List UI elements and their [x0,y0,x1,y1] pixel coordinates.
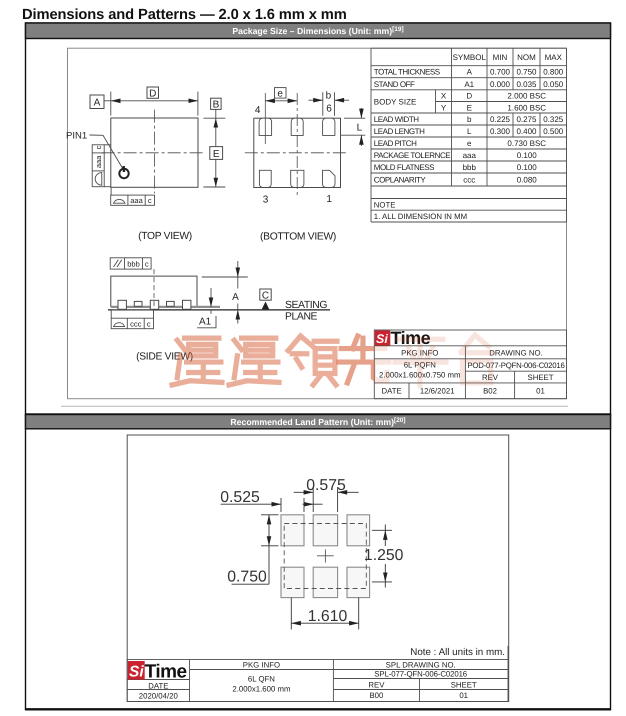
svg-text:Si: Si [129,663,144,680]
svg-text:ccc: ccc [130,319,142,328]
svg-text:COPLANARITY: COPLANARITY [374,176,427,185]
svg-text:6L QFN: 6L QFN [248,675,275,684]
svg-text:SYMBOL: SYMBOL [453,53,487,62]
svg-text:LEAD WIDTH: LEAD WIDTH [374,115,420,124]
svg-text:0.750: 0.750 [227,569,267,586]
svg-text:1.600 BSC: 1.600 BSC [507,103,546,112]
svg-text:SHEET: SHEET [451,680,477,689]
svg-text:1: 1 [326,194,332,205]
svg-text:A1: A1 [199,316,212,327]
svg-text:REV: REV [368,680,385,689]
svg-text:MOLD FLATNESS: MOLD FLATNESS [374,163,434,172]
svg-text:2.000x1.600 mm: 2.000x1.600 mm [232,685,290,694]
svg-text:0.400: 0.400 [516,127,537,136]
svg-text:X: X [441,92,447,101]
svg-text:b: b [326,91,332,102]
svg-text:LEAD PITCH: LEAD PITCH [374,139,417,148]
svg-text:STAND OFF: STAND OFF [374,80,415,89]
svg-text:12/6/2021: 12/6/2021 [420,387,455,396]
svg-text:bbb: bbb [463,163,477,172]
svg-text:Package Size – Dimensions (Uni: Package Size – Dimensions (Unit: mm)[19] [232,26,403,36]
svg-text:PLANE: PLANE [285,312,318,323]
svg-text:B02: B02 [483,387,497,396]
svg-text:MIN: MIN [493,53,508,62]
svg-text:PKG INFO: PKG INFO [243,660,280,669]
svg-text:SHEET: SHEET [528,373,554,382]
svg-text:BODY SIZE: BODY SIZE [374,97,417,106]
svg-text:DRAWING NO.: DRAWING NO. [489,349,542,358]
svg-text:e: e [467,139,472,148]
svg-text:0.080: 0.080 [517,176,538,185]
svg-text:0.300: 0.300 [490,127,511,136]
svg-text:SPL-077-QFN-006-C02016: SPL-077-QFN-006-C02016 [374,669,467,678]
svg-text:L: L [357,123,363,134]
svg-text:b: b [467,115,472,124]
svg-text:A: A [232,292,239,303]
svg-text:NOM: NOM [517,53,536,62]
svg-text:c: c [145,259,149,268]
svg-text:aaa: aaa [130,196,143,205]
svg-text:3: 3 [263,195,269,206]
svg-text:SPL DRAWING NO.: SPL DRAWING NO. [386,660,456,669]
svg-text:c: c [147,319,151,328]
svg-text:0.100: 0.100 [517,151,538,160]
svg-text:c: c [148,196,152,205]
svg-text:0.800: 0.800 [543,68,564,77]
svg-text:2020/04/20: 2020/04/20 [139,692,179,701]
svg-text:1. ALL DIMENSION IN MM: 1. ALL DIMENSION IN MM [374,212,467,221]
svg-text:01: 01 [536,387,545,396]
svg-text:(BOTTOM VIEW): (BOTTOM VIEW) [260,232,336,243]
svg-text:Note : All units in mm.: Note : All units in mm. [410,647,505,658]
svg-text:Recommended Land Pattern (Unit: Recommended Land Pattern (Unit: mm)[20] [230,417,405,427]
svg-text:L: L [467,127,472,136]
svg-text:e: e [277,88,283,99]
svg-text:B00: B00 [369,691,384,700]
svg-text:0.225: 0.225 [490,115,511,124]
svg-text:0.325: 0.325 [543,115,564,124]
svg-text:SEATING: SEATING [285,300,327,311]
svg-text:E: E [213,149,220,160]
svg-text:Time: Time [145,662,187,683]
svg-text:0.000: 0.000 [490,80,511,89]
svg-text:E: E [467,103,472,112]
svg-text:D: D [149,88,156,99]
svg-text:1.250: 1.250 [364,547,404,564]
svg-text:PIN1: PIN1 [66,131,87,142]
svg-text:4: 4 [255,105,261,116]
svg-text:0.500: 0.500 [543,127,564,136]
svg-text:A1: A1 [464,80,474,89]
svg-text:LEAD LENGTH: LEAD LENGTH [374,127,425,136]
svg-text:0.750: 0.750 [516,68,537,77]
svg-text:bbb: bbb [127,259,140,268]
svg-text:Si: Si [376,332,388,346]
svg-text:0.100: 0.100 [517,163,538,172]
svg-text:01: 01 [459,691,468,700]
svg-text:ccc: ccc [463,176,475,185]
svg-text:1.610: 1.610 [308,608,348,625]
svg-text:DATE: DATE [381,387,401,396]
svg-text:aaa: aaa [463,151,477,160]
svg-text:0.730 BSC: 0.730 BSC [507,139,546,148]
svg-text:PACKAGE TOLERNCE: PACKAGE TOLERNCE [374,151,450,160]
svg-text:0.700: 0.700 [490,68,511,77]
svg-text:6: 6 [326,104,332,115]
svg-text:0.275: 0.275 [516,115,537,124]
svg-text:0.050: 0.050 [543,80,564,89]
svg-text:A: A [467,68,473,77]
svg-text:D: D [466,92,472,101]
svg-text:2.000 BSC: 2.000 BSC [507,92,546,101]
svg-text:c: c [94,145,103,149]
svg-text:0.525: 0.525 [220,489,260,506]
svg-text:C: C [262,290,269,301]
svg-text:0.575: 0.575 [306,477,346,494]
svg-text:aaa: aaa [94,155,103,168]
svg-text:A: A [94,98,101,109]
svg-text:NOTE: NOTE [374,200,396,209]
svg-text:B: B [213,99,220,110]
svg-text:0.035: 0.035 [516,80,537,89]
svg-text:Y: Y [441,103,447,112]
svg-text:TOTAL THICKNESS: TOTAL THICKNESS [374,68,440,77]
svg-text:DATE: DATE [148,681,168,690]
svg-text:Dimensions and Patterns — 2.0: Dimensions and Patterns — 2.0 x 1.6 mm x… [22,7,347,23]
svg-text:MAX: MAX [545,53,563,62]
svg-text:(TOP VIEW): (TOP VIEW) [138,231,192,242]
